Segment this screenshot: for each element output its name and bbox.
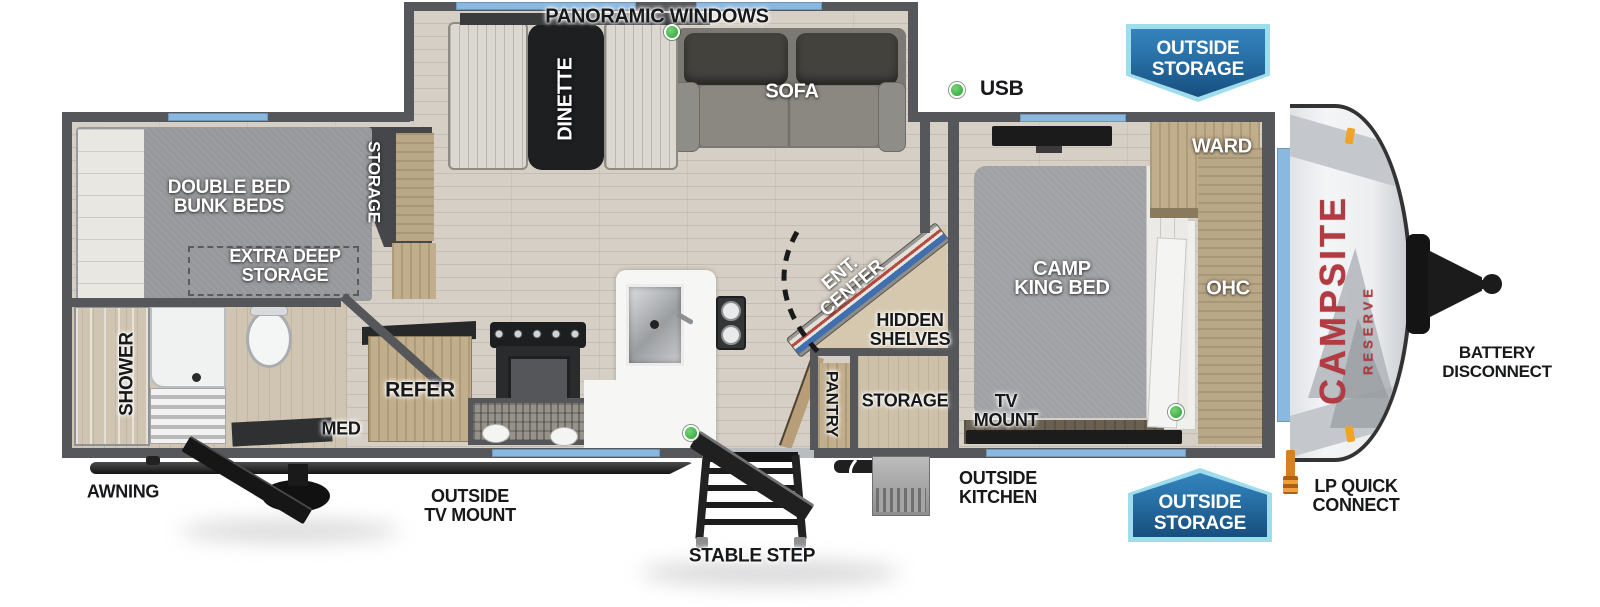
wall-pantry-left	[810, 355, 818, 450]
label-lp-quick-connect: LP QUICKCONNECT	[1313, 477, 1400, 515]
label-awning: AWNING	[87, 483, 159, 502]
wall-bedroom-divider	[948, 112, 959, 458]
toilet	[246, 310, 292, 368]
outside-kitchen-vent	[876, 488, 926, 512]
window-bedroom-bottom	[986, 449, 1186, 457]
rv-floorplan-diagram: CAMPSITE RESERVE PANORAMIC WINDOWS USB D…	[0, 0, 1600, 607]
label-sofa: SOFA	[765, 83, 818, 102]
label-refer: REFER	[385, 381, 455, 400]
label-usb: USB	[980, 79, 1023, 98]
outside-storage-badge-bottom: OUTSIDESTORAGE	[1128, 468, 1272, 542]
sofa-back-cushion	[796, 33, 898, 85]
slide-wall-left	[404, 2, 414, 121]
label-camp-king-bed: CAMPKING BED	[1014, 260, 1109, 298]
label-storage-bunk: STORAGE	[365, 141, 384, 223]
outside-storage-badge-top: OUTSIDESTORAGE	[1126, 24, 1270, 102]
awning-mount	[146, 456, 160, 465]
label-stable-step: STABLE STEP	[689, 547, 815, 566]
ground-shadow	[180, 520, 400, 542]
label-outside-tv-mount: OUTSIDETV MOUNT	[424, 487, 516, 525]
outside-tv-column	[288, 464, 308, 486]
label-pantry: PANTRY	[823, 371, 842, 437]
marker-kitchen	[683, 425, 699, 441]
shower-pan	[150, 306, 226, 388]
toilet-tank	[250, 306, 288, 316]
label-ward: WARD	[1192, 138, 1252, 157]
window-kitchen-bottom	[492, 449, 660, 457]
label-storage-bedroom: STORAGE	[862, 392, 949, 411]
bedroom-tv-bracket	[1036, 146, 1062, 153]
lp-quick-connect-fitting	[1283, 476, 1298, 494]
stored-item	[550, 427, 578, 446]
label-extra-deep-storage: EXTRA DEEPSTORAGE	[229, 247, 340, 285]
shower-glass	[74, 306, 150, 446]
marker-bedroom	[1168, 404, 1184, 420]
wall-rear-end	[62, 112, 72, 458]
dinette-bench	[604, 22, 678, 170]
label-panoramic-windows: PANORAMIC WINDOWS	[545, 8, 768, 27]
dinette-bench	[448, 22, 528, 170]
brand-campsite: CAMPSITE	[1312, 195, 1354, 405]
label-outside-kitchen: OUTSIDEKITCHEN	[959, 469, 1037, 507]
awning-rail	[90, 462, 694, 474]
bedroom-tv	[992, 126, 1112, 146]
label-ohc: OHC	[1206, 280, 1250, 299]
label-double-bed-bunk-beds: DOUBLE BEDBUNK BEDS	[168, 178, 291, 216]
sofa-arm	[878, 82, 906, 152]
kitchen-counter-wing	[584, 380, 680, 450]
bunk-storage-cabinet	[396, 133, 434, 241]
marker-usb	[949, 82, 965, 98]
wall-bathroom	[71, 298, 341, 307]
stove-burners	[490, 322, 586, 348]
label-med: MED	[321, 420, 360, 439]
hitch-jack-post	[1406, 234, 1430, 334]
window-bedroom-top	[1020, 114, 1126, 122]
cooktop-burner	[721, 301, 741, 321]
bunk-nightstand	[392, 243, 436, 299]
label-shower: SHOWER	[118, 332, 137, 416]
cap-graphic-stripe	[1290, 111, 1412, 196]
cooktop-burner	[721, 325, 741, 345]
wall-storage-top	[810, 348, 959, 356]
wall-front-end	[1262, 112, 1275, 458]
slide-wall-right	[908, 2, 918, 121]
label-dinette: DINETTE	[557, 57, 576, 140]
hitch-coupler	[1482, 274, 1502, 294]
badge-text: OUTSIDESTORAGE	[1128, 492, 1272, 534]
label-tv-mount: TVMOUNT	[974, 392, 1039, 430]
stored-item	[482, 424, 510, 443]
label-battery-disconnect: BATTERYDISCONNECT	[1442, 343, 1551, 381]
tv-mount-tv	[966, 430, 1182, 444]
sofa-back-cushion	[684, 33, 788, 85]
wall-pantry-right	[850, 355, 858, 450]
bunk-pillows	[78, 129, 144, 299]
badge-text: OUTSIDESTORAGE	[1126, 38, 1270, 80]
shower-step-slats	[150, 388, 226, 444]
wall-sofa-stub	[920, 121, 930, 233]
label-hidden-shelves: HIDDENSHELVES	[870, 311, 951, 349]
window-rear-top	[168, 113, 268, 121]
brand-reserve: RESERVE	[1361, 285, 1376, 375]
sink-drain	[650, 320, 659, 329]
shower-drain	[192, 373, 201, 382]
